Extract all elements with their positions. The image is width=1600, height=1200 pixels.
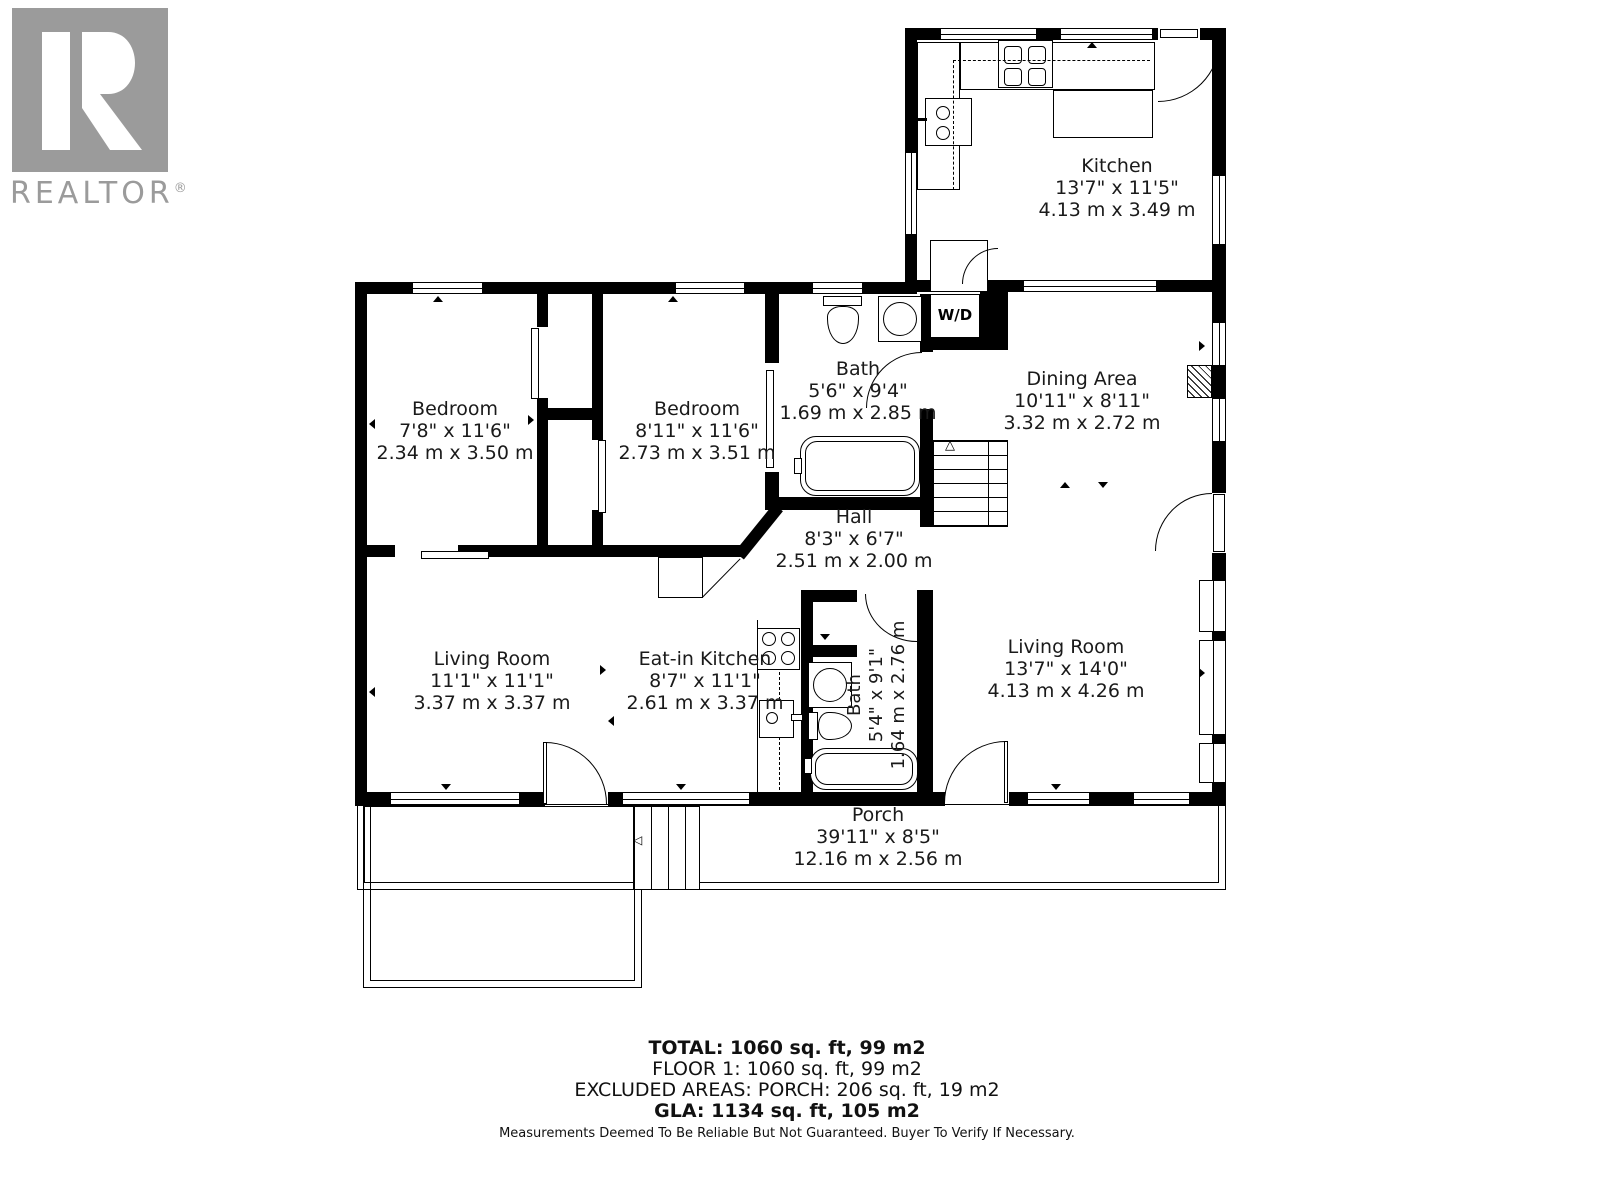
door-swing-arc	[1155, 493, 1212, 551]
arrow-up	[668, 296, 678, 302]
room-dim-metric: 4.13 m x 4.26 m	[966, 680, 1166, 702]
fireplace	[1187, 365, 1212, 398]
room-label-hall: Hall 8'3" x 6'7" 2.51 m x 2.00 m	[754, 506, 954, 572]
sink-basin	[936, 126, 950, 140]
room-dim-metric: 1.64 m x 2.76 m	[888, 595, 910, 795]
realtor-brand-text: REALTOR	[10, 176, 174, 211]
hall-cabinet	[658, 557, 703, 598]
summary-total: TOTAL: 1060 sq. ft, 99 m2	[437, 1038, 1137, 1059]
room-label-living-room-1: Living Room 11'1" x 11'1" 3.37 m x 3.37 …	[392, 648, 592, 714]
kitchen-counter	[1053, 90, 1153, 138]
arrow-left	[608, 716, 614, 726]
window	[940, 28, 1037, 40]
room-label-bath-2: Bath 5'4" x 9'1" 1.64 m x 2.76 m	[844, 595, 910, 795]
faucet	[791, 714, 803, 721]
door-swing-arc	[545, 742, 607, 804]
room-dim-imperial: 8'3" x 6'7"	[754, 528, 954, 550]
faucet	[911, 118, 927, 121]
bathroom-sink	[883, 302, 917, 336]
cabinet-diagonal	[702, 558, 741, 597]
stove-burner	[781, 632, 795, 646]
washer-dryer-label: W/D	[930, 306, 980, 324]
arrow-down	[820, 634, 830, 640]
window	[905, 152, 917, 235]
wall-below-bedrooms	[458, 545, 743, 557]
stairs-up-arrow: △	[945, 439, 955, 452]
room-label-bedroom-1: Bedroom 7'8" x 11'6" 2.34 m x 3.50 m	[355, 398, 555, 464]
room-name: Bedroom	[355, 398, 555, 420]
window	[1212, 322, 1226, 366]
room-label-porch: Porch 39'11" x 8'5" 12.16 m x 2.56 m	[778, 804, 978, 870]
kitchen-sink	[925, 98, 972, 146]
arrow-down	[1051, 784, 1061, 790]
room-name: Living Room	[392, 648, 592, 670]
summary-floor1: FLOOR 1: 1060 sq. ft, 99 m2	[437, 1059, 1137, 1080]
porch-steps-arrow: ◁	[633, 834, 642, 846]
room-dim-metric: 3.37 m x 3.37 m	[392, 692, 592, 714]
room-dim-metric: 3.32 m x 2.72 m	[982, 412, 1182, 434]
room-name: Dining Area	[982, 368, 1182, 390]
room-name: Living Room	[966, 636, 1166, 658]
room-dim-imperial: 10'11" x 8'11"	[982, 390, 1182, 412]
arrow-left	[369, 687, 375, 697]
realtor-logo-wordmark: REALTOR®	[10, 176, 230, 211]
window	[412, 282, 483, 294]
realtor-logo-icon	[12, 8, 168, 176]
room-name: Hall	[754, 506, 954, 528]
toilet-tank	[808, 712, 818, 740]
porch-steps	[633, 806, 700, 890]
window	[1023, 280, 1157, 292]
room-label-bath-1: Bath 5'6" x 9'4" 1.69 m x 2.85 m	[758, 358, 958, 424]
window	[1199, 743, 1226, 783]
room-label-living-room-2: Living Room 13'7" x 14'0" 4.13 m x 4.26 …	[966, 636, 1166, 702]
room-dim-imperial: 39'11" x 8'5"	[778, 826, 978, 848]
room-dim-imperial: 5'4" x 9'1"	[866, 595, 888, 795]
realtor-r-icon	[12, 8, 168, 172]
room-name: Bath	[844, 595, 866, 795]
room-dim-metric: 4.13 m x 3.49 m	[1017, 199, 1217, 221]
tub-faucet	[804, 758, 812, 774]
stove-burner	[1028, 46, 1046, 64]
kitchen-counter	[960, 42, 1155, 90]
room-dim-metric: 2.34 m x 3.50 m	[355, 442, 555, 464]
area-summary: TOTAL: 1060 sq. ft, 99 m2 FLOOR 1: 1060 …	[437, 1038, 1137, 1122]
room-dim-metric: 1.69 m x 2.85 m	[758, 402, 958, 424]
window	[675, 282, 745, 294]
arrow-right	[1199, 341, 1205, 351]
stove-burner	[762, 632, 776, 646]
stairs-divider	[988, 440, 989, 527]
bathroom-sink	[813, 668, 847, 702]
arrow-down	[441, 784, 451, 790]
deck-outline-inner	[370, 806, 635, 981]
sliding-door-leaf	[421, 551, 489, 559]
wall-bedroom2-bath-upper	[765, 294, 779, 363]
arrow-right	[1199, 668, 1205, 678]
arrow-up	[1060, 482, 1070, 488]
arrow-down	[676, 784, 686, 790]
stove-burner	[1004, 68, 1022, 86]
window	[1212, 398, 1226, 442]
door-leaf	[1213, 494, 1225, 552]
room-label-kitchen: Kitchen 13'7" x 11'5" 4.13 m x 3.49 m	[1017, 155, 1217, 221]
wall-bath2-right	[917, 590, 933, 792]
disclaimer-text: Measurements Deemed To Be Reliable But N…	[437, 1126, 1137, 1141]
room-label-dining-area: Dining Area 10'11" x 8'11" 3.32 m x 2.72…	[982, 368, 1182, 434]
door-swing-arc	[944, 741, 1006, 803]
room-dim-imperial: 13'7" x 11'5"	[1017, 177, 1217, 199]
room-name: Porch	[778, 804, 978, 826]
room-name: Bath	[758, 358, 958, 380]
room-dim-metric: 12.16 m x 2.56 m	[778, 848, 978, 870]
arrow-up	[763, 795, 773, 801]
summary-gla: GLA: 1134 sq. ft, 105 m2	[437, 1101, 1137, 1122]
room-dim-imperial: 8'7" x 11'1"	[605, 670, 805, 692]
counter-dash	[953, 60, 954, 190]
toilet-tank	[823, 296, 862, 306]
wall-left	[355, 282, 367, 792]
window	[1199, 580, 1226, 632]
window	[812, 282, 863, 294]
wall-below-bedroom1-stub	[367, 545, 395, 557]
door-leaf	[1160, 29, 1198, 38]
room-dim-imperial: 11'1" x 11'1"	[392, 670, 592, 692]
sink-basin	[936, 106, 950, 120]
counter-dash	[953, 60, 1150, 61]
arrow-up	[433, 296, 443, 302]
arrow-down	[1098, 482, 1108, 488]
room-dim-metric: 2.51 m x 2.00 m	[754, 550, 954, 572]
wall-wd-pillar	[980, 288, 1008, 348]
wall-kitchen-bottom-left	[917, 280, 930, 292]
room-dim-imperial: 5'6" x 9'4"	[758, 380, 958, 402]
room-dim-imperial: 7'8" x 11'6"	[355, 420, 555, 442]
window	[1199, 640, 1226, 735]
stove-burner	[1028, 68, 1046, 86]
room-label-eat-in-kitchen: Eat-in Kitchen 8'7" x 11'1" 2.61 m x 3.3…	[605, 648, 805, 714]
bathtub	[800, 436, 920, 496]
toilet-bowl	[827, 306, 859, 344]
room-name: Eat-in Kitchen	[605, 648, 805, 670]
wall-kitchen-bottom-right	[1157, 280, 1226, 292]
window	[1060, 28, 1153, 40]
stove-burner	[1004, 46, 1022, 64]
registered-mark: ®	[174, 181, 187, 196]
floor-plan: REALTOR® Kitchen 13'7" x 11'5" 4.13 m x …	[0, 0, 1600, 1200]
room-dim-metric: 2.61 m x 3.37 m	[605, 692, 805, 714]
summary-excluded: EXCLUDED AREAS: PORCH: 206 sq. ft, 19 m2	[437, 1080, 1137, 1101]
door-swing-arc	[1158, 40, 1220, 102]
room-dim-metric: 2.73 m x 3.51 m	[597, 442, 797, 464]
arrow-up	[1087, 42, 1097, 48]
room-dim-imperial: 13'7" x 14'0"	[966, 658, 1166, 680]
room-name: Kitchen	[1017, 155, 1217, 177]
sliding-door-leaf	[531, 328, 539, 399]
